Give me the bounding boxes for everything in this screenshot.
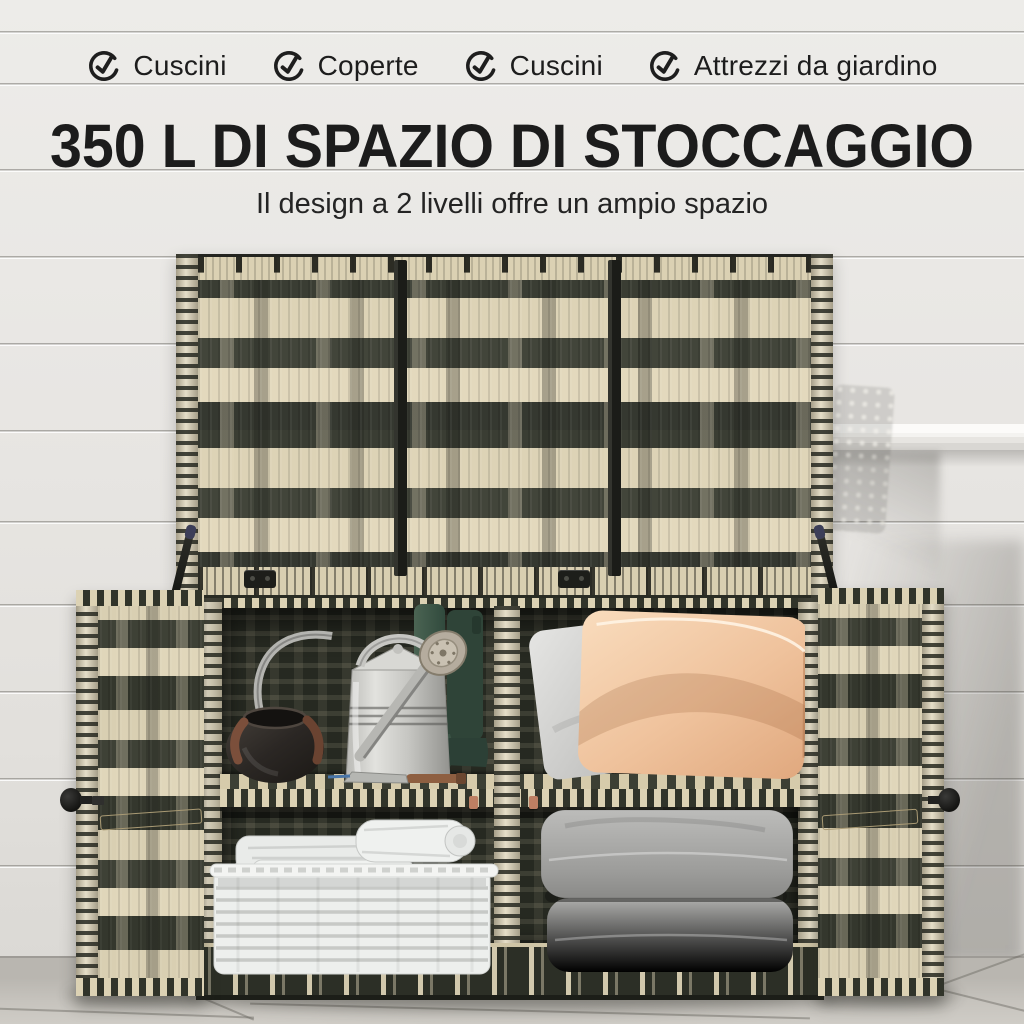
feature-label: Cuscini (510, 50, 603, 82)
knob-stem (80, 796, 92, 804)
feature-item: Cuscini (86, 48, 226, 84)
garden-items-group (210, 596, 500, 792)
peach-pillow (577, 610, 805, 780)
check-circle-icon (463, 48, 499, 84)
headline-subtitle: Il design a 2 livelli offre un ampio spa… (0, 188, 1024, 221)
wall-plank-line (0, 31, 1024, 34)
feature-label: Attrezzi da giardino (694, 50, 938, 82)
basket-towels-group (208, 814, 500, 986)
lid-top-weave-row (198, 254, 811, 283)
lid-strap (394, 260, 407, 576)
open-rattan-lid (176, 254, 833, 598)
lid-hinge (558, 570, 590, 588)
check-circle-icon (271, 48, 307, 84)
stacked-cushions-group (535, 802, 803, 978)
feature-item: Attrezzi da giardino (647, 48, 938, 84)
door-top-row (76, 590, 204, 606)
left-rattan-door (76, 590, 204, 996)
feature-item: Cuscini (463, 48, 603, 84)
check-circle-icon (86, 48, 122, 84)
lid-hinge (244, 570, 276, 588)
door-bottom-row (76, 978, 204, 996)
white-wicker-basket (210, 864, 498, 974)
tile-joint (0, 1007, 254, 1018)
headline-title: 350 L DI SPAZIO DI STOCCAGGIO (31, 116, 994, 177)
pillows-group (520, 604, 805, 784)
shelf-clip (469, 796, 478, 809)
feature-label: Cuscini (133, 50, 226, 82)
product-marketing-image: Cuscini Coperte Cuscini (0, 0, 1024, 1024)
feature-checklist: Cuscini Coperte Cuscini (0, 48, 1024, 84)
lid-weave-panel (198, 280, 811, 570)
right-door-knob (938, 788, 960, 812)
feature-label: Coperte (318, 50, 419, 82)
knob-stem (928, 796, 940, 804)
door-latch (92, 796, 104, 805)
door-bottom-row (818, 978, 944, 996)
check-circle-icon (647, 48, 683, 84)
right-rattan-door (818, 588, 944, 996)
black-pot (226, 708, 324, 783)
door-weave-panel (818, 588, 922, 996)
lid-bottom-weave-row (198, 567, 811, 598)
feature-item: Coperte (271, 48, 419, 84)
rolled-towel (356, 820, 475, 862)
door-top-row (818, 588, 944, 604)
door-weave-panel (98, 590, 204, 996)
left-door-knob (60, 788, 82, 812)
lid-strap (608, 260, 621, 576)
